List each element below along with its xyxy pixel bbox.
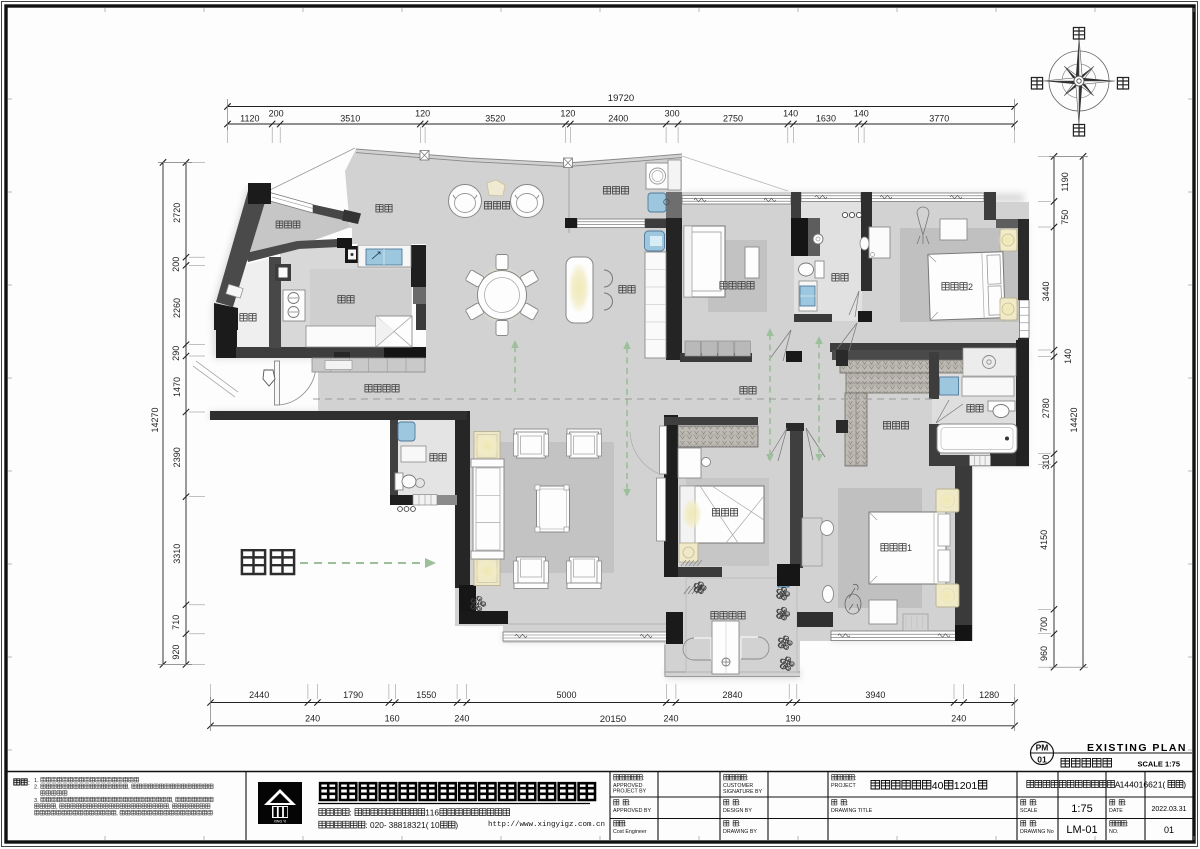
- svg-text:2260: 2260: [172, 298, 182, 318]
- svg-text:200: 200: [269, 109, 284, 119]
- svg-text:DRAWING No: DRAWING No: [1020, 829, 1054, 835]
- svg-text:2720: 2720: [172, 203, 182, 223]
- svg-text::: :: [846, 800, 848, 807]
- svg-text:01: 01: [1037, 755, 1047, 765]
- svg-text::: :: [28, 780, 30, 787]
- svg-text::: :: [746, 775, 748, 782]
- svg-text:3310: 3310: [172, 544, 182, 564]
- svg-text::: :: [625, 821, 627, 828]
- svg-text::: :: [854, 775, 856, 782]
- svg-text:DATE: DATE: [1109, 808, 1123, 814]
- svg-text:290: 290: [171, 346, 181, 361]
- svg-text:750: 750: [1060, 210, 1070, 225]
- svg-text:2440: 2440: [249, 690, 269, 700]
- svg-text:): ): [1183, 780, 1186, 790]
- svg-text:http://www.xingyigz.com.cn: http://www.xingyigz.com.cn: [488, 821, 605, 829]
- svg-text:140: 140: [783, 109, 798, 119]
- svg-text:140: 140: [854, 109, 869, 119]
- svg-text:SCALE 1:75: SCALE 1:75: [1137, 760, 1180, 769]
- svg-text:240: 240: [664, 714, 679, 724]
- svg-text:2750: 2750: [723, 114, 743, 124]
- svg-text:1120: 1120: [240, 114, 259, 124]
- svg-text:DRAWING TITLE: DRAWING TITLE: [831, 808, 873, 814]
- svg-text:(: (: [426, 820, 429, 830]
- svg-text:2840: 2840: [723, 690, 743, 700]
- svg-text:3520: 3520: [485, 114, 505, 124]
- svg-text:2780: 2780: [1041, 398, 1051, 418]
- svg-text:920: 920: [171, 645, 181, 660]
- svg-text:APPROVED BY: APPROVED BY: [613, 808, 651, 814]
- svg-text:190: 190: [785, 714, 800, 724]
- svg-text:1280: 1280: [979, 690, 999, 700]
- svg-text:4150: 4150: [1039, 530, 1049, 550]
- svg-text::: :: [738, 800, 740, 807]
- svg-text:200: 200: [171, 257, 181, 272]
- svg-text:1190: 1190: [1060, 172, 1070, 191]
- svg-text::: :: [1127, 821, 1129, 828]
- svg-text:120: 120: [560, 109, 575, 119]
- svg-text:700: 700: [1039, 617, 1049, 632]
- svg-text::: :: [365, 820, 367, 830]
- svg-text:240: 240: [951, 714, 966, 724]
- svg-text:1790: 1790: [343, 690, 363, 700]
- svg-text:1470: 1470: [172, 377, 182, 397]
- svg-text:PROJECT: PROJECT: [831, 783, 856, 789]
- svg-text:19720: 19720: [608, 93, 634, 104]
- svg-text:NO.: NO.: [1109, 829, 1118, 835]
- svg-text:2: 2: [968, 282, 973, 292]
- svg-text:14420: 14420: [1069, 407, 1079, 432]
- svg-text:2022.03.31: 2022.03.31: [1151, 806, 1186, 813]
- svg-text:240: 240: [305, 714, 320, 724]
- svg-text:DRAWING BY: DRAWING BY: [723, 829, 757, 835]
- svg-text:240: 240: [454, 714, 469, 724]
- svg-text:300: 300: [665, 109, 680, 119]
- svg-text::: :: [1124, 800, 1126, 807]
- svg-text:0: 0: [435, 820, 440, 830]
- svg-text:140: 140: [1063, 349, 1073, 364]
- svg-text:EXISTING PLAN: EXISTING PLAN: [1087, 742, 1187, 754]
- svg-text:5000: 5000: [556, 690, 576, 700]
- svg-text:(: (: [1162, 780, 1165, 790]
- svg-text:0: 0: [938, 780, 944, 792]
- svg-text:3940: 3940: [865, 690, 885, 700]
- svg-text:1: 1: [907, 543, 912, 553]
- svg-text:1: 1: [971, 780, 977, 792]
- svg-text:160: 160: [385, 714, 400, 724]
- svg-text:310: 310: [1041, 455, 1051, 470]
- svg-text::: :: [1035, 821, 1037, 828]
- svg-text:SCALE: SCALE: [1020, 808, 1038, 814]
- svg-text:1:75: 1:75: [1071, 803, 1092, 815]
- svg-text:Cost Engineer: Cost Engineer: [613, 829, 647, 835]
- svg-text:01: 01: [1164, 825, 1174, 835]
- svg-text:-: -: [384, 820, 387, 830]
- svg-text:14270: 14270: [150, 407, 160, 432]
- svg-text:LM-01: LM-01: [1066, 824, 1097, 836]
- svg-text:3510: 3510: [340, 114, 360, 124]
- svg-text:1630: 1630: [816, 114, 836, 124]
- svg-text:20150: 20150: [600, 714, 626, 725]
- svg-text:): ): [455, 820, 458, 830]
- svg-text::: :: [1035, 800, 1037, 807]
- svg-text::: :: [350, 808, 352, 818]
- svg-text:XING YI: XING YI: [274, 820, 287, 824]
- svg-text:710: 710: [171, 615, 181, 630]
- svg-text:2390: 2390: [172, 447, 182, 467]
- svg-text::: :: [738, 821, 740, 828]
- svg-text:120: 120: [415, 109, 430, 119]
- svg-text:DESIGN BY: DESIGN BY: [723, 808, 752, 814]
- svg-text:3770: 3770: [929, 114, 949, 124]
- svg-text::: :: [642, 775, 644, 782]
- svg-text:PM: PM: [1036, 743, 1049, 753]
- svg-text:SIGNATURE BY: SIGNATURE BY: [723, 789, 763, 795]
- svg-text:3440: 3440: [1041, 281, 1051, 301]
- svg-text:2400: 2400: [608, 114, 628, 124]
- svg-text:1550: 1550: [416, 690, 436, 700]
- svg-text:6: 6: [434, 808, 439, 818]
- svg-text:PROJECT BY: PROJECT BY: [613, 789, 647, 795]
- svg-text:960: 960: [1039, 646, 1049, 661]
- svg-text::: :: [628, 800, 630, 807]
